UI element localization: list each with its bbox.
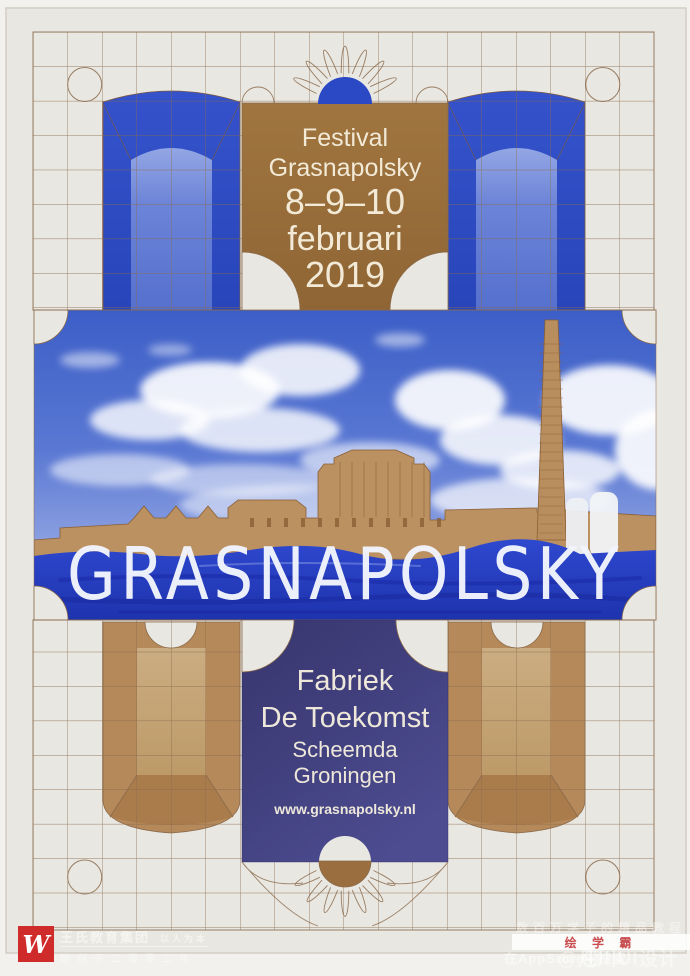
header-month: februari — [287, 220, 402, 258]
poster-artwork: GRASNAPOLSKY Festival Grasnap — [0, 0, 690, 976]
header-dates: 8–9–10 — [285, 181, 405, 222]
photo-strip: GRASNAPOLSKY — [34, 310, 690, 620]
header-name: Grasnapolsky — [269, 154, 422, 182]
wangshi-logo-letter: W — [23, 930, 50, 959]
company-slogan: 以人为本 — [160, 934, 208, 944]
venue-website: www.grasnapolsky.nl — [273, 801, 416, 817]
company-name: 王氏教育集团 — [60, 930, 150, 945]
watermark-account: @凡川UI设计 — [558, 944, 679, 971]
venue-building1: Fabriek — [297, 665, 394, 697]
venue-province: Groningen — [294, 763, 397, 788]
venue-town: Scheemda — [292, 737, 398, 762]
header-festival: Festival — [302, 124, 388, 152]
poster-photo: GRASNAPOLSKY Festival Grasnap — [0, 0, 690, 976]
watermark-founded: 始创于二零零二年 — [60, 950, 196, 965]
wangshi-logo: W — [18, 926, 54, 962]
header-year: 2019 — [305, 254, 385, 295]
main-title-lettering: GRASNAPOLSKY — [67, 533, 623, 617]
watermark-divider — [60, 946, 208, 947]
watermark-company: 王氏教育集团以人为本 — [60, 927, 208, 946]
venue-building2: De Toekomst — [261, 702, 430, 734]
